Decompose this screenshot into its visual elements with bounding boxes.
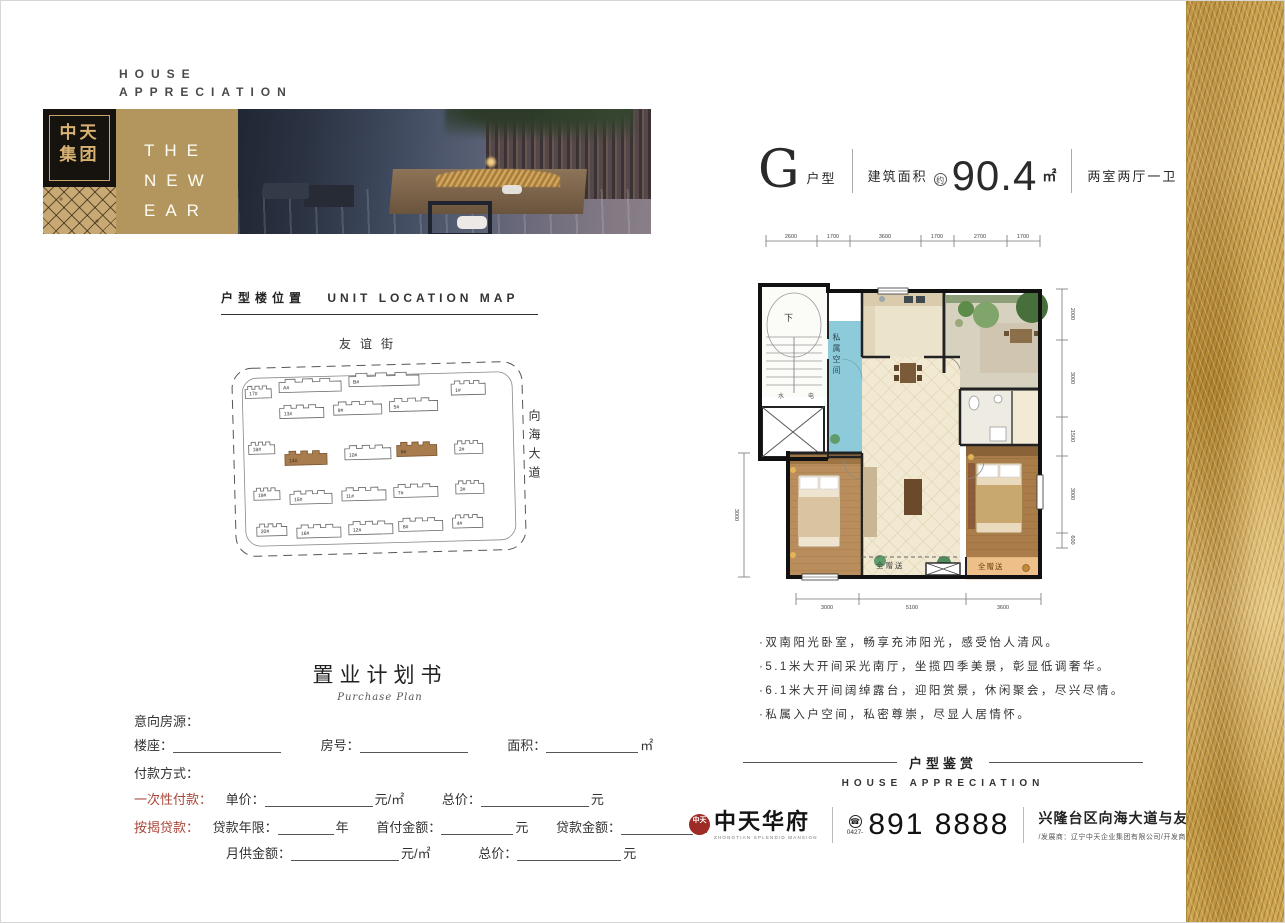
dim-left-1: 3000 [733, 509, 739, 521]
logo-black-box: 中天 集团 [43, 109, 116, 187]
form-area-label: 面积： [507, 738, 546, 753]
total-label-2: 总价： [478, 846, 517, 861]
payment-label: 付款方式： [134, 766, 199, 781]
dim-top-5: 2700 [974, 234, 986, 240]
building-label-3: 3# [460, 487, 466, 493]
footer-brand-block: 中天 中天华府 ZHONGTIAN SPLENDID MANSION [689, 810, 818, 840]
location-map-title-cn: 户型楼位置 [221, 291, 306, 305]
monthly-blank[interactable] [291, 847, 399, 861]
monthly-label: 月供金额： [226, 846, 291, 861]
form-title: 置业计划书 [134, 659, 626, 689]
interior-photo [238, 109, 651, 234]
building-label-9: 9# [338, 408, 344, 414]
hallway [1012, 391, 1040, 445]
phone-icon: ☎ [849, 815, 862, 828]
building-label-19: 19# [258, 493, 267, 499]
appreciation-section: 户型鉴赏 HOUSE APPRECIATION [743, 753, 1143, 789]
dim-right-1: 2000 [1069, 308, 1075, 320]
building-label-8: 8# [403, 524, 409, 530]
building-label-15: 15# [294, 497, 303, 503]
dim-right-2: 3000 [1069, 372, 1075, 384]
brand-name-en: ZHONGTIAN SPLENDID MANSION [714, 835, 818, 840]
divider-right-line [989, 762, 1143, 763]
building-label-B: B# [353, 379, 359, 385]
floor-plan-svg: 2600 1700 3600 1700 2700 1700 2000 3000 … [728, 227, 1100, 629]
gold-banner: THE NEW EAR [116, 109, 238, 234]
dims-bottom [796, 593, 1041, 605]
total-blank-2[interactable] [517, 847, 621, 861]
building-label-11: 11# [346, 494, 354, 500]
form-area-unit: ㎡ [640, 738, 653, 753]
dim-right-4: 3000 [1069, 488, 1075, 500]
electric-label: 电 [808, 391, 814, 400]
purchase-plan-form: 置业计划书 Purchase Plan 意向房源： 楼座： 房号： 面积：㎡ 付… [134, 659, 626, 703]
building-blank[interactable] [173, 739, 281, 753]
footer-divider-1 [832, 807, 833, 843]
site-map-svg: 17#A#B#1#13#9#5#18#14#10#6#2#19#15#11#7#… [226, 349, 531, 569]
appreciation-cn: 户型鉴赏 [909, 753, 977, 772]
area-value: 90.4 [952, 157, 1038, 195]
water-label: 水 [778, 391, 784, 400]
building-label-5: 5# [394, 404, 400, 410]
area-label: 建筑面积 [868, 166, 928, 185]
loan-years-label: 贷款年限： [213, 820, 278, 835]
dim-top-2: 1700 [827, 234, 839, 240]
intent-label: 意向房源： [134, 714, 199, 729]
year-unit: 年 [336, 820, 349, 835]
appreciation-en: HOUSE APPRECIATION [743, 778, 1143, 789]
location-map-title: 户型楼位置 UNIT LOCATION MAP [221, 289, 538, 315]
down-payment-label: 首付金额： [376, 820, 441, 835]
top-header-line2: APPRECIATION [119, 83, 293, 101]
top-header: HOUSE APPRECIATION [119, 65, 293, 101]
brand-name: 中天华府 [714, 810, 818, 834]
stair-down-label: 下 [784, 311, 793, 324]
photo-gold-sculpture [436, 169, 560, 187]
divider-left-line [743, 762, 897, 763]
area-blank[interactable] [546, 739, 638, 753]
footer-divider-2 [1023, 807, 1024, 843]
feature-bullet-1: ·双南阳光卧室，畅享充沛阳光，感受怡人清风。 [759, 631, 1125, 655]
room-blank[interactable] [360, 739, 468, 753]
dim-top-4: 1700 [931, 234, 943, 240]
building-label-13: 13# [284, 411, 293, 417]
dim-top-6: 1700 [1017, 234, 1029, 240]
gift-label-center: 全赠送 [876, 560, 905, 571]
mortgage-label: 按揭贷款： [134, 820, 199, 835]
photo-lamp-glow [486, 157, 496, 167]
unit-letter: G [758, 147, 800, 195]
photo-sofa [263, 183, 309, 199]
top-header-line1: HOUSE [119, 65, 293, 83]
loan-years-blank[interactable] [278, 821, 334, 835]
private-space-label: 私属空间 [831, 333, 842, 377]
banner-line1: THE [144, 136, 238, 166]
form-subtitle: Purchase Plan [134, 692, 626, 703]
logo-text-line1: 中天 [43, 122, 116, 144]
building-label-20: 20# [261, 529, 270, 535]
feature-bullet-3: ·6.1米大开间阔绰露台，迎阳赏景，休闲聚会，尽兴尽情。 [759, 679, 1125, 703]
feature-list: ·双南阳光卧室，畅享充沛阳光，感受怡人清风。 ·5.1米大开间采光南厅，坐揽四季… [759, 631, 1125, 727]
dim-bottom-3: 3600 [997, 605, 1009, 611]
building-label-14: 14# [289, 458, 298, 464]
building-label-18: 18# [253, 447, 262, 453]
dim-right-5: 600 [1069, 535, 1075, 544]
footer-contact: 中天 中天华府 ZHONGTIAN SPLENDID MANSION ☎ 042… [689, 807, 1268, 843]
down-payment-blank[interactable] [441, 821, 513, 835]
form-row-intent: 意向房源： [134, 711, 199, 730]
unit-price-blank[interactable] [265, 793, 373, 807]
building-label-A: A# [283, 385, 289, 391]
building-label-6: 6# [401, 449, 407, 455]
building-label-1: 1# [455, 388, 461, 394]
area-unit: ㎡ [1042, 166, 1056, 186]
dims-right [1056, 289, 1068, 548]
dim-right-3: 1500 [1069, 430, 1075, 442]
yuan-unit-2: 元 [515, 820, 528, 835]
total-blank[interactable] [481, 793, 589, 807]
building-label-12: 12# [353, 527, 362, 533]
logo-text-line2: 集团 [43, 144, 116, 166]
dim-bottom-1: 3000 [821, 605, 833, 611]
dims-top [766, 235, 1040, 247]
footer-phone-block: ☎ 0427- 891 8888 [847, 808, 1010, 842]
dim-top-1: 2600 [785, 234, 797, 240]
site-buildings: 17#A#B#1#13#9#5#18#14#10#6#2#19#15#11#7#… [245, 370, 489, 539]
room-label: 房号： [321, 738, 360, 753]
photo-cushion-2 [502, 185, 522, 194]
photo-hanging-plants [445, 109, 635, 146]
logo-lattice-pattern [43, 187, 116, 234]
phone-number: 891 8888 [868, 808, 1009, 842]
per-sqm-unit-2: 元/㎡ [401, 846, 431, 861]
building-label-17: 17# [249, 391, 258, 397]
loan-amount-label: 贷款金额： [556, 820, 621, 835]
feature-bullet-4: ·私属入户空间，私密尊崇，尽显人居情怀。 [759, 703, 1125, 727]
yuan-unit: 元 [591, 792, 604, 807]
floor-plan: 2600 1700 3600 1700 2700 1700 2000 3000 … [728, 227, 1100, 629]
building-label-16: 16# [301, 531, 310, 537]
per-sqm-unit: 元/㎡ [375, 792, 405, 807]
brand-seal-icon: 中天 [689, 814, 710, 835]
gold-texture-strip [1186, 1, 1285, 923]
form-row-monthly: 月供金额：元/㎡ 总价：元 [226, 843, 636, 862]
unit-type-label: 户型 [807, 168, 837, 187]
photo-cushion [457, 216, 487, 229]
divider-line-2 [1071, 149, 1072, 193]
building-label-7: 7# [398, 490, 404, 496]
divider-line [852, 149, 853, 193]
location-map-title-en: UNIT LOCATION MAP [327, 291, 518, 305]
street-label-top: 友谊街 [339, 335, 402, 352]
form-row-onetime: 一次性付款： 单价：元/㎡ 总价：元 [134, 789, 604, 808]
yuan-unit-4: 元 [623, 846, 636, 861]
brochure-page: HOUSE APPRECIATION 中天 集团 THE NEW EAR [0, 0, 1285, 923]
building-label: 楼座： [134, 738, 173, 753]
banner-line2: NEW [144, 166, 238, 196]
total-label: 总价： [442, 792, 481, 807]
banner-line3: EAR [144, 196, 238, 226]
feature-bullet-2: ·5.1米大开间采光南厅，坐揽四季美景，彰显低调奢华。 [759, 655, 1125, 679]
photo-table [304, 185, 354, 207]
room-layout-label: 两室两厅一卫 [1087, 166, 1177, 185]
loan-amount-blank[interactable] [621, 821, 693, 835]
form-row-mortgage: 按揭贷款： 贷款年限：年 首付金额：元 贷款金额：元 [134, 817, 708, 836]
site-map: 17#A#B#1#13#9#5#18#14#10#6#2#19#15#11#7#… [226, 349, 531, 569]
logo-text: 中天 集团 [43, 109, 116, 166]
form-row-unit: 楼座： 房号： 面积：㎡ [134, 735, 653, 754]
dim-top-3: 3600 [879, 234, 891, 240]
dim-bottom-2: 5100 [906, 605, 918, 611]
onetime-label: 一次性付款： [134, 792, 212, 807]
building-label-2: 2# [459, 447, 465, 453]
unit-price-label: 单价： [226, 792, 265, 807]
form-row-payment: 付款方式： [134, 763, 199, 782]
unit-type-header: G 户型 建筑面积 约 90.4 ㎡ 两室两厅一卫 [758, 137, 1177, 195]
gift-label-right: 全赠送 [978, 561, 1004, 572]
company-logo: 中天 集团 [43, 109, 116, 234]
approx-circle-icon: 约 [934, 173, 947, 186]
building-label-10: 10# [349, 453, 358, 459]
building-label-4: 4# [457, 521, 463, 527]
area-code: 0427- [847, 829, 864, 836]
